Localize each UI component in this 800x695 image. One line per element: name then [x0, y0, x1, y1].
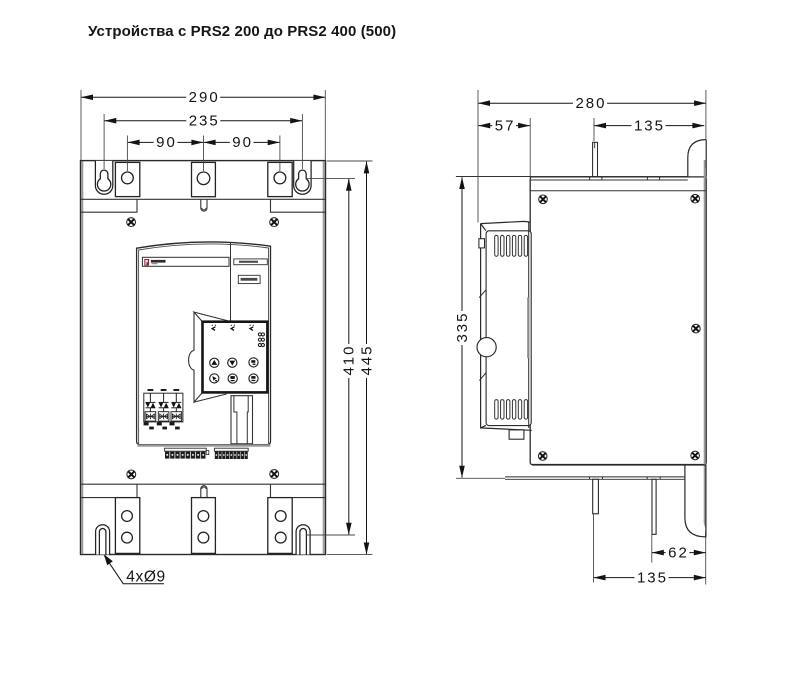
- svg-text:135: 135: [637, 569, 668, 586]
- svg-text:90: 90: [156, 134, 177, 151]
- svg-text:62: 62: [668, 544, 689, 561]
- svg-text:280: 280: [575, 95, 606, 112]
- svg-text:135: 135: [634, 117, 665, 134]
- svg-text:235: 235: [189, 112, 220, 129]
- svg-text:Устройства с PRS2 200 до PRS2: Устройства с PRS2 200 до PRS2 400 (500): [88, 23, 396, 40]
- svg-text:410: 410: [341, 345, 358, 376]
- svg-text:335: 335: [454, 312, 471, 343]
- svg-text:90: 90: [232, 134, 253, 151]
- svg-text:57: 57: [495, 117, 516, 134]
- svg-text:4xØ9: 4xØ9: [126, 569, 165, 586]
- svg-text:445: 445: [358, 345, 375, 376]
- svg-text:290: 290: [189, 89, 220, 106]
